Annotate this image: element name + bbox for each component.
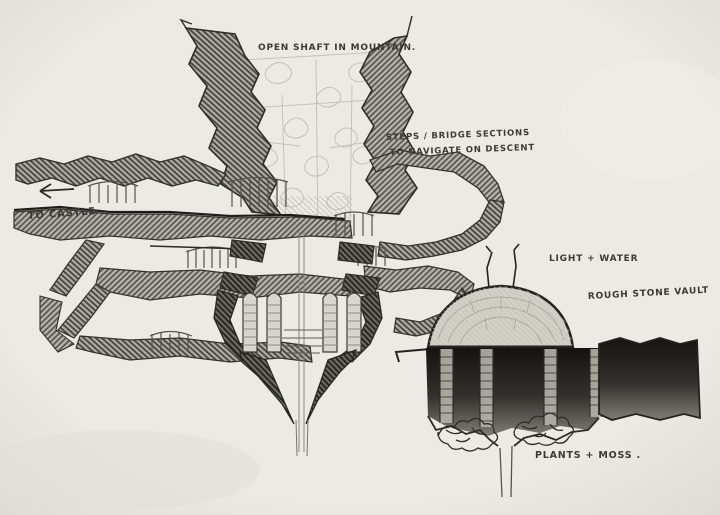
label-plants-moss: PLANTS + MOSS . <box>535 450 641 461</box>
label-light-water: LIGHT + WATER <box>549 254 638 264</box>
label-open-shaft: OPEN SHAFT IN MOUNTAIN. <box>258 43 416 53</box>
vault-right-strata <box>599 338 700 420</box>
sketch-page: OPEN SHAFT IN MOUNTAIN. STEPS / BRIDGE S… <box>0 0 720 515</box>
mountain-section-sketch: OPEN SHAFT IN MOUNTAIN. STEPS / BRIDGE S… <box>0 0 720 515</box>
